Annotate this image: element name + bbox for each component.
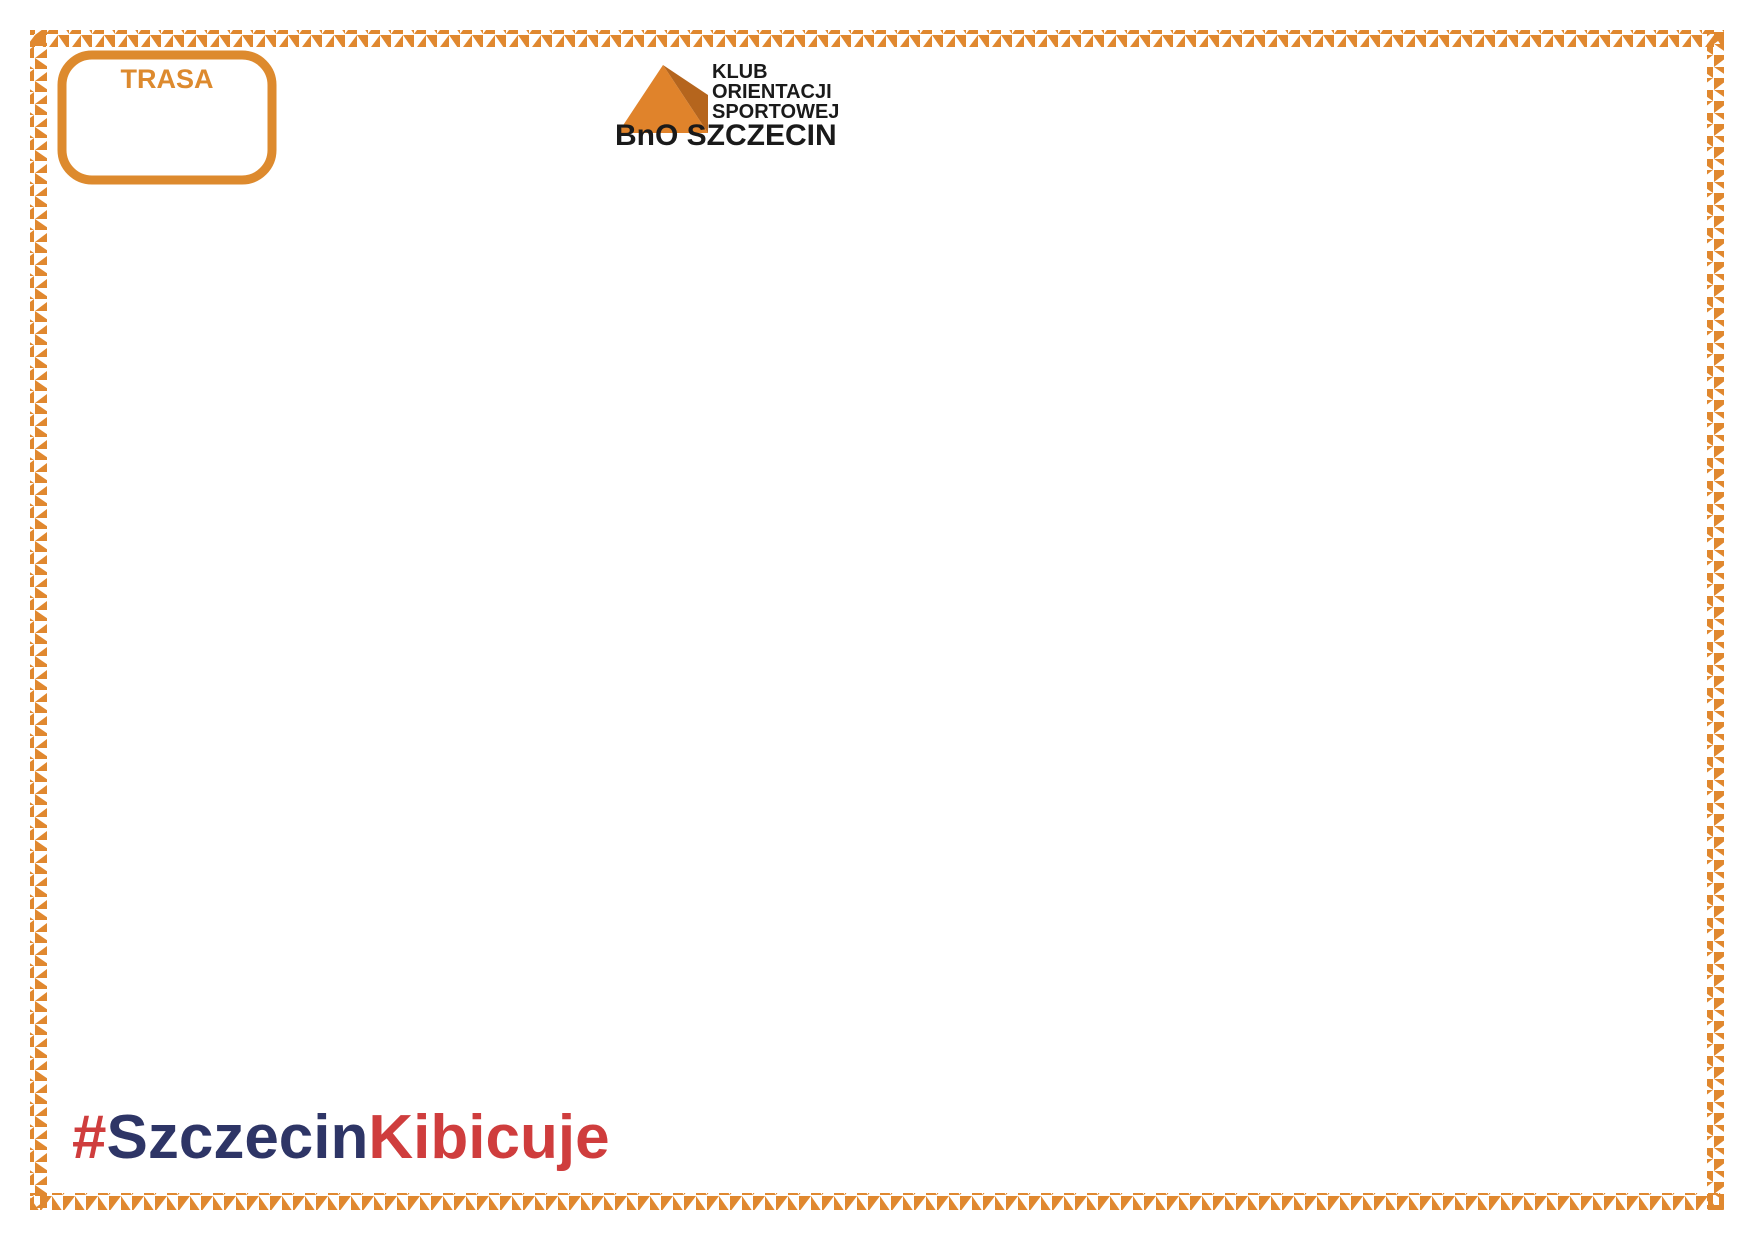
svg-text:KLUB: KLUB bbox=[712, 61, 768, 83]
svg-text:BnO SZCZECIN: BnO SZCZECIN bbox=[615, 119, 837, 152]
svg-text:ORIENTACJI: ORIENTACJI bbox=[712, 81, 832, 103]
svg-text:TRASA: TRASA bbox=[121, 64, 214, 94]
svg-text:#SzczecinKibicuje: #SzczecinKibicuje bbox=[72, 1103, 610, 1172]
